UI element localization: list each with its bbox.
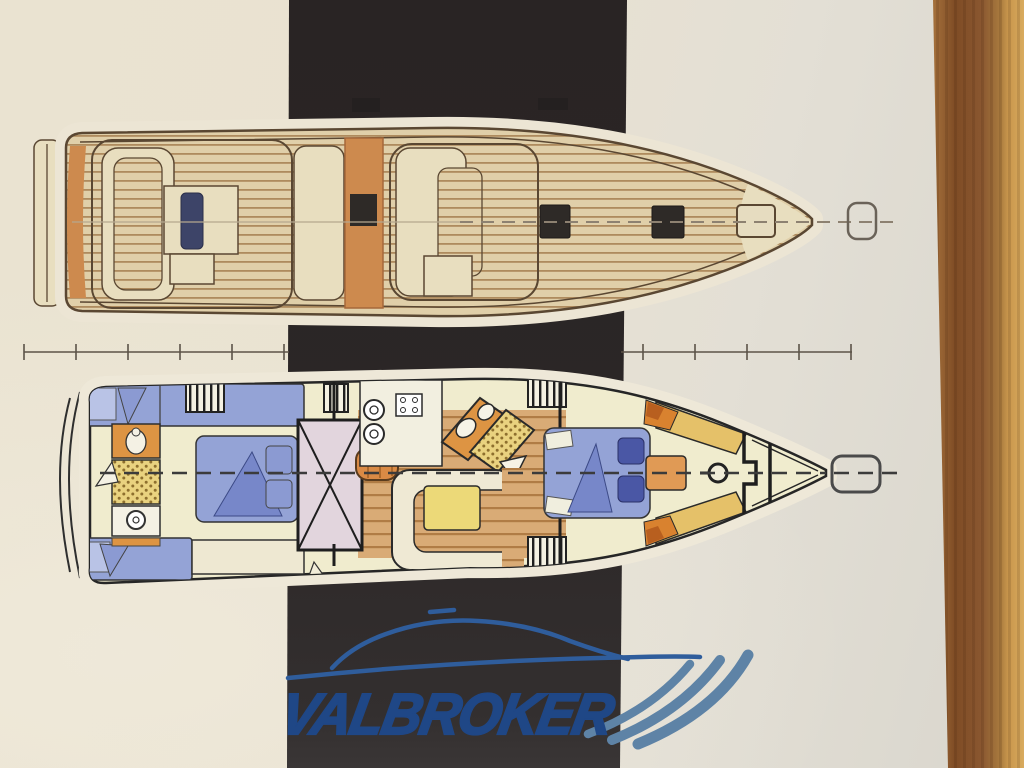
watermark-text: VALBROKER xyxy=(276,682,619,747)
yacht-silhouette-icon xyxy=(288,610,700,678)
boat-layout-photo: VALBROKER xyxy=(0,0,1024,768)
valbroker-watermark: VALBROKER xyxy=(0,0,1024,768)
